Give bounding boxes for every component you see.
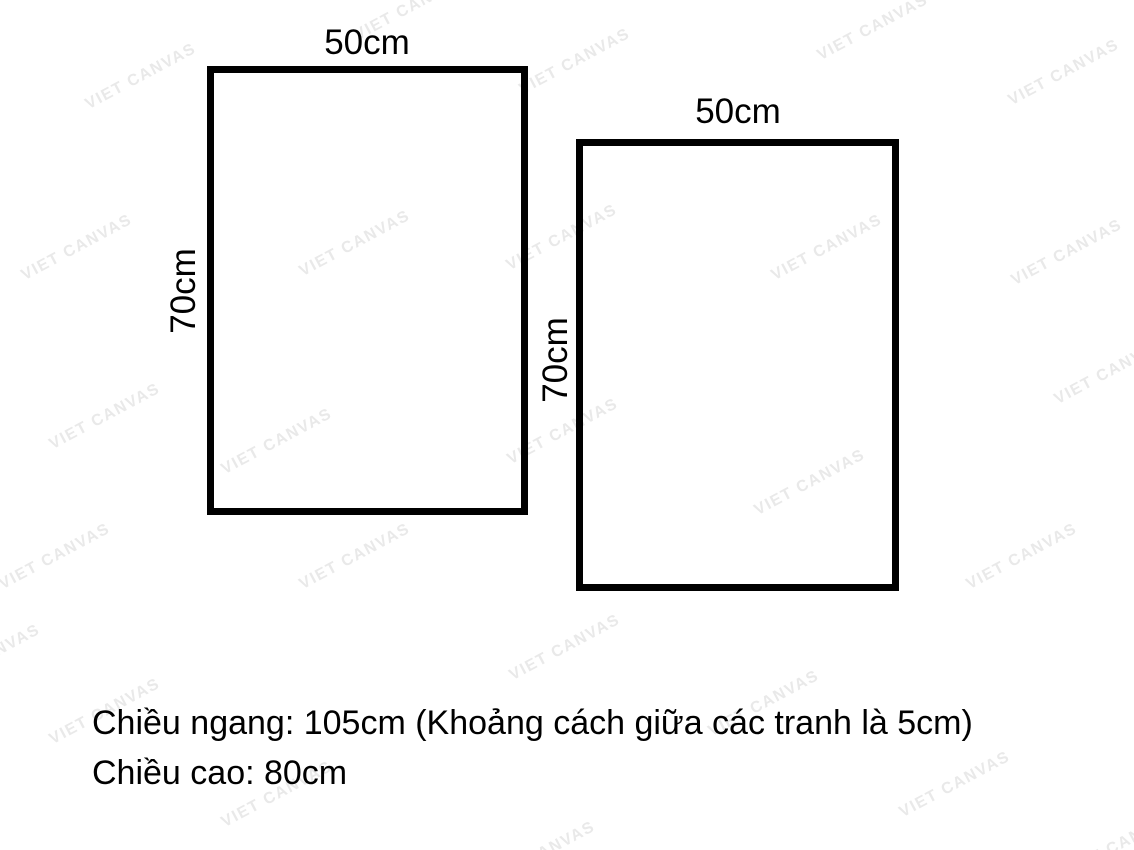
watermark-text: VIET CANVAS xyxy=(297,520,414,594)
watermark-text: VIET CANVAS xyxy=(507,611,624,685)
dimension-notes: Chiều ngang: 105cm (Khoảng cách giữa các… xyxy=(92,698,973,798)
watermark-text: VIET CANVAS xyxy=(1006,36,1123,110)
frame-left-height-label: 70cm xyxy=(165,248,204,334)
watermark-text: VIET CANVAS xyxy=(482,818,599,850)
frame-right-width-label: 50cm xyxy=(695,93,781,132)
frame-right-rectangle xyxy=(576,139,899,591)
watermark-text: VIET CANVAS xyxy=(1009,216,1126,290)
watermark-text: VIET CANVAS xyxy=(83,40,200,114)
frame-right-height-label: 70cm xyxy=(537,317,576,403)
watermark-text: VIET CANVAS xyxy=(815,0,932,65)
size-diagram: VIET CANVASVIET CANVASVIET CANVASVIET CA… xyxy=(0,0,1134,850)
watermark-text: VIET CANVAS xyxy=(1052,335,1134,409)
note-total-width: Chiều ngang: 105cm (Khoảng cách giữa các… xyxy=(92,698,973,748)
watermark-text: VIET CANVAS xyxy=(47,380,164,454)
watermark-text: VIET CANVAS xyxy=(517,25,634,99)
watermark-text: VIET CANVAS xyxy=(964,520,1081,594)
watermark-text: VIET CANVAS xyxy=(19,211,136,285)
watermark-text: VIET CANVAS xyxy=(0,621,43,695)
watermark-text: VIET CANVAS xyxy=(0,520,113,594)
note-total-height: Chiều cao: 80cm xyxy=(92,748,973,798)
frame-left-rectangle xyxy=(207,66,528,515)
frame-left-width-label: 50cm xyxy=(324,24,410,63)
watermark-text: VIET CANVAS xyxy=(1062,808,1134,850)
